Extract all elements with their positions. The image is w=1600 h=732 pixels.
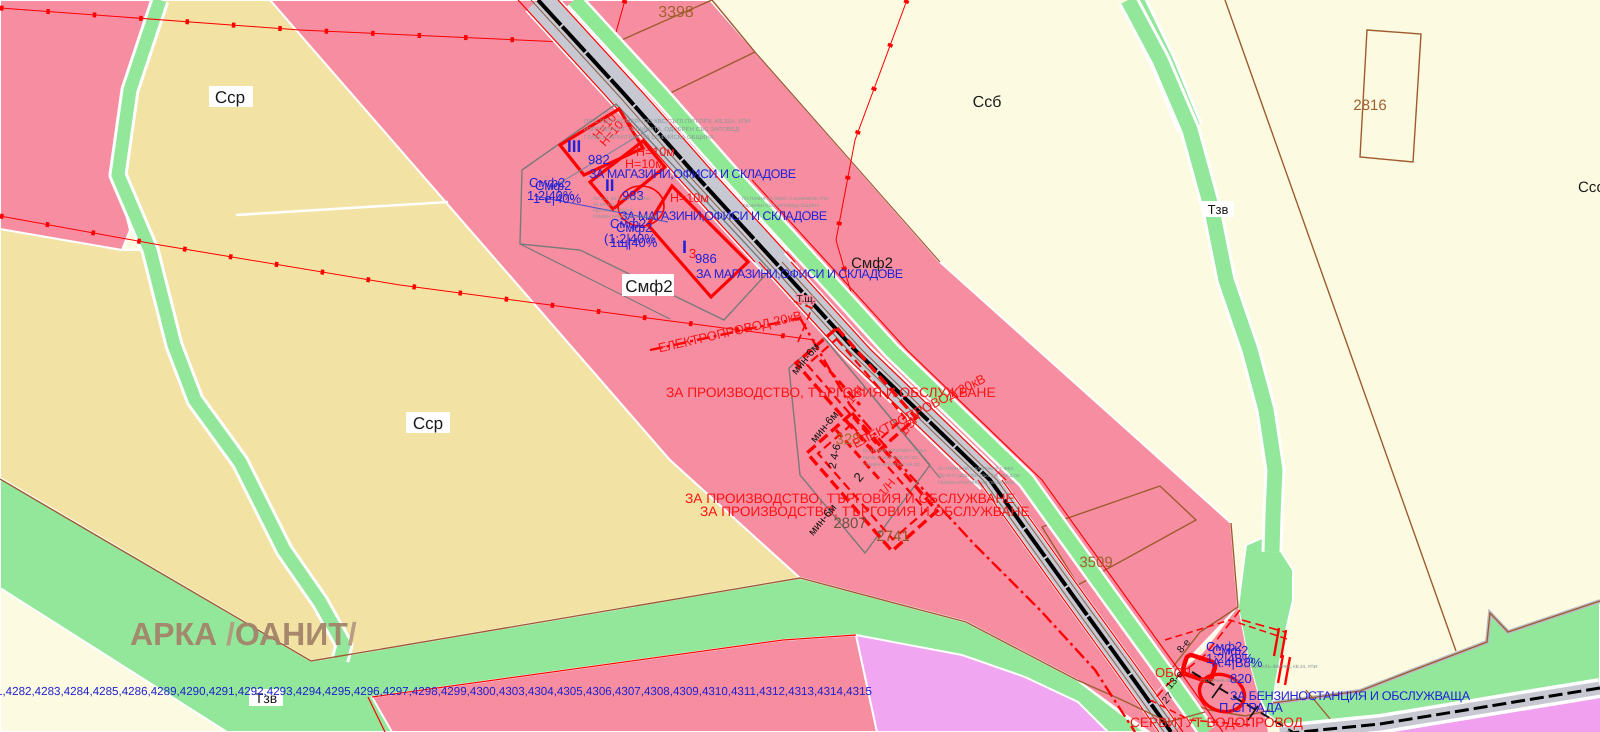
svg-text:1,4282,4283,4284,4285,4286,428: 1,4282,4283,4284,4285,4286,4289,4290,429… — [0, 685, 872, 698]
svg-text:ГЛАВЕН-АРХИТЕКТ НА ОС: ГЛАВЕН-АРХИТЕКТ НА ОС — [863, 462, 921, 467]
svg-text:Сср: Сср — [215, 88, 245, 107]
svg-text:1-е|40%: 1-е|40% — [533, 191, 582, 206]
svg-text:ПО ПЛАНА НА С.КАЗИЧЕНЕ Г-ФФА: ПО ПЛАНА НА С.КАЗИЧЕНЕ Г-ФФА — [938, 466, 1013, 471]
svg-text:3398: 3398 — [658, 4, 694, 21]
svg-text:АРКА /ОАНИТ/: АРКА /ОАНИТ/ — [130, 616, 357, 652]
svg-text:РД-05-П ОДОБРЕН СЪС ЗАПОВЕД ОС: РД-05-П ОДОБРЕН СЪС ЗАПОВЕД ОС — [938, 473, 1021, 478]
svg-text:ЗА МАГАЗИНИ,ОФИСИ И СКЛАДОВЕ: ЗА МАГАЗИНИ,ОФИСИ И СКЛАДОВЕ — [696, 267, 903, 281]
svg-text:ГЛАВЕН АРХИТЕКТ ОБЩИНА: ГЛАВЕН АРХИТЕКТ ОБЩИНА — [593, 214, 656, 219]
svg-text:ОДОБРЕН СЪС ЗАПОВЕД ОБЩИНА: ОДОБРЕН СЪС ЗАПОВЕД ОБЩИНА — [742, 203, 819, 208]
svg-text:3509: 3509 — [1079, 554, 1112, 571]
svg-text:820: 820 — [1230, 671, 1252, 686]
svg-text:ПИ 123, КВ.32А ПО ПЛАНА: ПИ 123, КВ.32А ПО ПЛАНА — [593, 196, 650, 201]
svg-text:Смф2: Смф2 — [625, 277, 672, 296]
svg-text:2816: 2816 — [1353, 97, 1386, 114]
svg-text:Сср: Сср — [413, 414, 443, 433]
svg-text:986: 986 — [695, 251, 717, 266]
svg-text:Тзв: Тзв — [1208, 202, 1229, 217]
svg-text:СЕРВИТУТ ВОДОПРОВОД: СЕРВИТУТ ВОДОПРОВОД — [1130, 715, 1304, 730]
svg-text:982: 982 — [588, 152, 610, 167]
svg-text:Ссб: Ссб — [973, 94, 1002, 111]
svg-text:II: II — [605, 176, 614, 195]
svg-text:ГЛАВЕН АРХИТЕКТ НА СОФИЙСКА ОБ: ГЛАВЕН АРХИТЕКТ НА СОФИЙСКА ОБЩИНА — [584, 133, 714, 141]
svg-text:РД-05-П ЗАПОВЕД ОТ ОС: РД-05-П ЗАПОВЕД ОТ ОС — [863, 455, 919, 460]
svg-text:ПО ПЛАНА ИЗГОТВЕН Г-ФФА: ПО ПЛАНА ИЗГОТВЕН Г-ФФА — [863, 448, 926, 453]
svg-text:I: I — [682, 237, 687, 257]
svg-text:А:4|В8%: А:4|В8% — [1212, 655, 1263, 670]
svg-text:Н=10м: Н=10м — [670, 191, 709, 205]
svg-text:Ссо: Ссо — [1578, 179, 1600, 196]
svg-text:2741: 2741 — [876, 528, 909, 545]
svg-text:ПО ПЛАНА НА ЗЕМЛ. С.КАЗИЧЕНЕ У: ПО ПЛАНА НА ЗЕМЛ. С.КАЗИЧЕНЕ УПИ — [742, 196, 828, 201]
svg-text:ЗА КВ.32А: ЗА КВ.32А — [593, 202, 615, 207]
svg-text:ЗА ПРОИЗВОДСТВО, ТЪРГОВИЯ И ОБ: ЗА ПРОИЗВОДСТВО, ТЪРГОВИЯ И ОБСЛУЖВАНЕ — [700, 504, 1030, 519]
svg-text:ЗА МАГАЗИНИ,ОФИСИ И СКЛАДОВЕ: ЗА МАГАЗИНИ,ОФИСИ И СКЛАДОВЕ — [589, 167, 796, 181]
svg-text:1щ|40%: 1щ|40% — [610, 235, 658, 250]
svg-text:Т.щ.: Т.щ. — [797, 294, 816, 305]
svg-text:Н=10м: Н=10м — [625, 157, 664, 171]
svg-text:ГЛАВЕН-АРХИТЕКТ НА ОБЩИНАТА: ГЛАВЕН-АРХИТЕКТ НА ОБЩИНАТА — [938, 480, 1014, 485]
svg-text:ИЗГОТВЕН ОТ ОБЩИНАТА, ОДОБРЕН: ИЗГОТВЕН ОТ ОБЩИНАТА, ОДОБРЕН СЪС ЗАПОВЕ… — [584, 126, 739, 133]
svg-text:Смф2: Смф2 — [616, 220, 652, 235]
svg-text:РД-09-50-123/2007: РД-09-50-123/2007 — [593, 208, 633, 213]
svg-text:П.СГРАДА: П.СГРАДА — [1219, 700, 1283, 715]
svg-text:ПИ С ИД-Р НОМЕРА ПО КВС,СЪГЛ.П: ПИ С ИД-Р НОМЕРА ПО КВС,СЪГЛ.ПУП-ПРЗ, КВ… — [584, 118, 750, 125]
svg-text:III: III — [567, 137, 581, 156]
